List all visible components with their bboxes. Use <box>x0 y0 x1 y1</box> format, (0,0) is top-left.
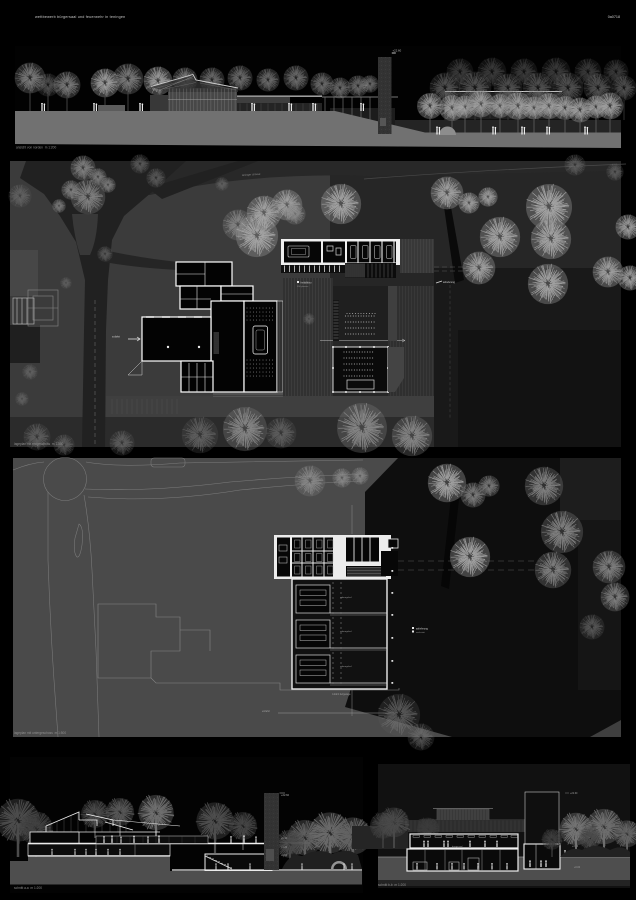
svg-text:lageplan mit erdgeschoss m 1:: lageplan mit erdgeschoss m 1:500 <box>14 442 64 446</box>
svg-text:schnitt b-b m 1:200: schnitt b-b m 1:200 <box>378 883 406 887</box>
svg-text:+22.60: +22.60 <box>570 792 578 795</box>
svg-text:zufahrt tiefgarage: zufahrt tiefgarage <box>332 693 351 696</box>
svg-text:+6.40: +6.40 <box>281 837 288 840</box>
svg-text:anlieferung: anlieferung <box>443 281 455 284</box>
svg-text:wettbewerb bürgersaal und feue: wettbewerb bürgersaal und feuerwehr in t… <box>35 15 125 19</box>
svg-text:schnitt a-a m 1:200: schnitt a-a m 1:200 <box>14 886 42 890</box>
svg-text:+0.00: +0.00 <box>574 866 581 869</box>
svg-text:+22.60: +22.60 <box>281 793 290 797</box>
svg-text:uebungshof: uebungshof <box>340 597 352 599</box>
svg-text:einfahrt: einfahrt <box>262 710 270 713</box>
svg-text:freiluftkino: freiluftkino <box>301 282 313 285</box>
svg-text:+3.20: +3.20 <box>281 846 288 849</box>
svg-text:350 plaetze: 350 plaetze <box>297 285 309 288</box>
svg-text:0a0718: 0a0718 <box>608 15 620 19</box>
svg-text:uebungshof: uebungshof <box>340 631 352 633</box>
svg-text:uebungshof: uebungshof <box>340 666 352 668</box>
svg-text:werkstatt: werkstatt <box>416 631 425 634</box>
svg-text:ansicht von norden m 1:200: ansicht von norden m 1:200 <box>16 146 56 150</box>
svg-text:lageplan mit untergeschoss m: lageplan mit untergeschoss m 1:500 <box>14 731 66 735</box>
svg-text:anlieferung: anlieferung <box>416 628 428 631</box>
svg-text:zufahrt: zufahrt <box>112 335 120 339</box>
svg-text:+0.00: +0.00 <box>281 854 288 857</box>
svg-text:+22.60: +22.60 <box>393 49 402 53</box>
